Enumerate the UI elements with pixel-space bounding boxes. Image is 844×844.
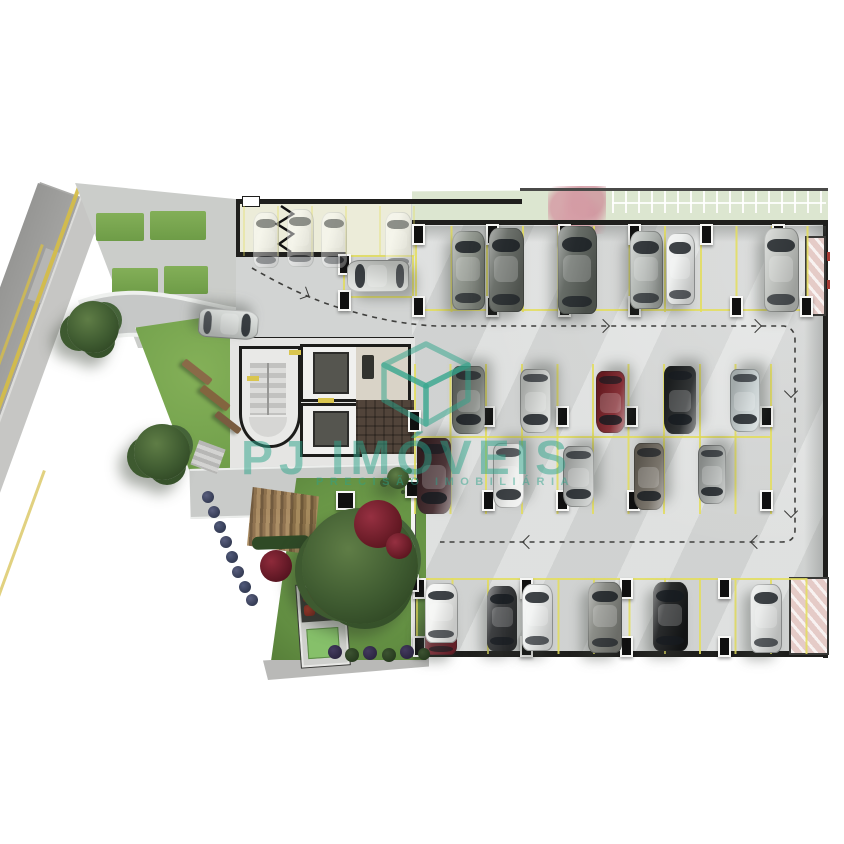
windshield — [656, 590, 683, 601]
red-shrub — [386, 533, 412, 559]
car-roof — [702, 466, 722, 484]
car-body — [417, 438, 451, 514]
car-body — [664, 366, 696, 434]
car-sedan-dark-maroon — [417, 438, 451, 514]
car-body — [558, 226, 597, 314]
car-roof — [219, 313, 239, 335]
windshield — [240, 314, 251, 337]
dimension-mark — [827, 252, 830, 261]
windshield — [633, 241, 659, 253]
sidewalk-tree — [134, 424, 190, 480]
car-sedan-dark-red — [596, 371, 625, 433]
rear-window — [324, 256, 344, 263]
grass-strip — [112, 268, 158, 295]
column-pillar — [800, 296, 813, 317]
car-roof — [494, 256, 519, 282]
car-roof — [524, 392, 546, 412]
car-suv-silver — [630, 231, 663, 309]
entrance-side-wall — [236, 199, 240, 257]
column-pillar — [718, 578, 731, 599]
windshield — [599, 415, 622, 425]
car-sedan-black-3 — [653, 582, 688, 651]
elevator-shaft-2 — [300, 403, 362, 457]
car-roof — [492, 607, 513, 627]
car-body — [253, 212, 279, 268]
red-shrub — [260, 550, 292, 582]
windshield — [669, 242, 692, 254]
hedge-shrub — [220, 536, 232, 548]
site-plan-rendering: PJ IMÓVEIS PRECISÃO IMOBILIÁRIA — [0, 0, 844, 844]
rear-window — [202, 311, 211, 334]
windshield — [592, 591, 619, 602]
car-sedan-white — [493, 443, 524, 508]
elevator-shaft-1 — [300, 344, 362, 402]
car-body — [563, 446, 594, 507]
windshield — [525, 592, 549, 603]
border-shrub — [418, 648, 430, 660]
rear-window — [566, 450, 590, 458]
car-body — [487, 586, 517, 651]
street-tree — [67, 301, 119, 353]
rear-window — [633, 293, 659, 303]
car-roof — [593, 605, 617, 627]
ghost-car — [253, 212, 279, 268]
car-roof — [367, 265, 386, 287]
rear-window — [637, 448, 660, 457]
windshield — [490, 594, 513, 604]
car-roof — [429, 603, 452, 622]
car-suv-gray-2 — [588, 582, 622, 653]
car-suv-light-gray — [764, 228, 799, 312]
car-roof — [526, 606, 548, 627]
car-body — [630, 231, 663, 309]
car-body — [750, 584, 782, 653]
car-body — [653, 582, 688, 651]
wood-deck-lounge — [356, 400, 414, 454]
car-roof — [670, 257, 690, 279]
parking-line — [414, 436, 770, 438]
column-pillar — [625, 406, 638, 427]
car-suv-silver-2 — [563, 446, 594, 507]
car-body — [520, 369, 551, 433]
stair-handrail — [267, 363, 269, 415]
red-bin — [304, 605, 316, 617]
car-roof — [769, 256, 794, 282]
windshield — [455, 241, 481, 254]
rear-window — [289, 255, 310, 263]
car-driveway-silver — [197, 307, 259, 340]
rear-window — [396, 264, 404, 289]
garden-bush — [387, 467, 409, 489]
rear-window — [490, 637, 513, 645]
rear-window — [656, 636, 683, 645]
car-roof — [257, 230, 275, 247]
grass-strip — [164, 266, 208, 294]
rear-window — [767, 294, 794, 305]
car-body — [197, 307, 259, 340]
car-body — [321, 212, 347, 268]
car-body — [588, 582, 622, 653]
windshield — [428, 591, 454, 601]
column-pillar — [408, 410, 421, 432]
border-shrub — [382, 648, 396, 662]
car-roof — [497, 466, 519, 486]
rear-window — [592, 638, 619, 647]
car-compact-white — [666, 233, 695, 305]
hedge-shrub — [239, 581, 251, 593]
car-roof — [600, 393, 620, 412]
door-opening — [243, 197, 259, 206]
column-pillar — [412, 296, 425, 317]
rear-window — [599, 376, 622, 384]
car-sedan-black — [664, 366, 696, 434]
car-roof — [755, 606, 777, 627]
column-pillar — [730, 296, 743, 317]
windshield — [733, 413, 756, 423]
column-pillar — [412, 224, 425, 245]
car-sedan-silver — [520, 369, 551, 433]
car-body — [764, 228, 799, 312]
hedge-shrub — [246, 594, 258, 606]
car-body — [452, 366, 485, 434]
hedge-shrub — [208, 506, 220, 518]
car-classic-light-blue — [730, 369, 760, 432]
hedge-shrub — [232, 566, 244, 578]
windshield — [754, 592, 779, 603]
rear-window — [428, 630, 454, 638]
car-roof — [422, 465, 446, 489]
parking-line — [412, 255, 414, 298]
car-body — [347, 260, 409, 292]
car-body — [666, 233, 695, 305]
windshield — [566, 489, 590, 499]
ghost-car — [321, 212, 347, 268]
car-body — [489, 228, 524, 312]
car-roof — [634, 257, 657, 281]
car-body — [287, 209, 314, 267]
hedge-row — [252, 535, 310, 550]
car-suv-brown-gray — [634, 443, 664, 510]
ghost-car — [287, 209, 314, 267]
rear-window — [701, 449, 723, 457]
car-body — [698, 445, 726, 504]
parking-line — [344, 296, 414, 298]
rear-window — [668, 371, 693, 380]
windshield — [289, 217, 310, 226]
car-sedan-white-2 — [522, 584, 553, 651]
windshield — [256, 219, 276, 228]
border-shrub — [400, 645, 414, 659]
column-pillar — [700, 224, 713, 245]
car-body — [634, 443, 664, 510]
strip-divider-line — [612, 202, 826, 204]
car-roof — [456, 257, 479, 281]
windshield — [668, 414, 693, 425]
rear-window — [669, 290, 692, 299]
room-fixture — [362, 355, 374, 379]
car-body — [596, 371, 625, 433]
windshield — [496, 489, 520, 499]
rear-window — [525, 636, 549, 645]
rear-window — [733, 374, 756, 382]
rear-window — [562, 296, 592, 307]
car-roof — [563, 255, 590, 282]
hedge-shrub — [202, 491, 214, 503]
car-suv-gray — [452, 366, 485, 434]
car-roof — [325, 230, 343, 247]
elevator-cab — [313, 352, 349, 394]
car-body — [452, 231, 485, 310]
hedge-shrub — [226, 551, 238, 563]
car-white-front — [425, 583, 458, 643]
street-yellow-line-left-2 — [0, 470, 46, 612]
car-sedan-black-2 — [487, 586, 517, 651]
stair-landing — [249, 417, 287, 437]
wall-top-left — [236, 199, 522, 204]
car-body — [730, 369, 760, 432]
car-roof — [291, 228, 310, 246]
car-body — [425, 583, 458, 643]
grass-strip — [96, 213, 144, 241]
car-sedan-silver-3 — [750, 584, 782, 653]
windshield — [324, 219, 344, 228]
car-suv-entrance — [347, 260, 409, 292]
car-roof — [639, 467, 660, 488]
car-roof — [735, 391, 756, 411]
car-suv-dark-large — [558, 226, 597, 314]
rear-window — [492, 294, 519, 305]
rear-window — [455, 371, 481, 380]
tactile-mat — [289, 350, 301, 355]
windshield — [701, 486, 723, 495]
windshield — [421, 492, 448, 504]
windshield — [637, 490, 660, 501]
column-pillar — [338, 290, 351, 311]
rear-window — [496, 448, 520, 456]
car-suv-gray-compact — [698, 445, 726, 504]
windshield — [455, 414, 481, 425]
rear-window — [523, 374, 547, 382]
rear-window — [429, 646, 454, 651]
column-pillar — [760, 406, 773, 427]
windshield — [767, 239, 794, 252]
car-sedan-gray-green — [452, 231, 485, 310]
windshield — [523, 414, 547, 424]
car-body — [522, 584, 553, 651]
rear-window — [754, 638, 779, 647]
garage-top-wall — [412, 220, 828, 225]
windshield — [355, 264, 365, 289]
tactile-mat — [247, 376, 259, 381]
car-roof — [567, 467, 589, 486]
utility-room — [356, 344, 411, 406]
rear-window — [455, 293, 481, 303]
hedge-shrub — [214, 521, 226, 533]
windshield — [387, 220, 408, 229]
rear-window — [256, 256, 276, 263]
border-shrub — [363, 646, 377, 660]
elevator-cab — [313, 411, 349, 447]
tactile-mat — [318, 398, 334, 403]
border-shrub — [328, 645, 342, 659]
car-roof — [389, 231, 408, 249]
windshield — [492, 239, 519, 252]
property-line — [520, 188, 828, 191]
parking-line — [416, 578, 806, 580]
dimension-mark — [827, 280, 830, 289]
car-roof — [669, 390, 691, 411]
column-pillar — [556, 406, 569, 427]
car-body — [493, 443, 524, 508]
column-pillar — [718, 636, 731, 657]
car-roof — [658, 604, 683, 625]
column-pillar — [336, 491, 355, 510]
car-suv-dark-gray — [489, 228, 524, 312]
windshield — [562, 237, 592, 251]
car-roof — [456, 390, 479, 411]
grass-strip — [150, 211, 206, 240]
border-shrub — [345, 648, 359, 662]
stair-tower — [239, 346, 301, 448]
rear-window — [421, 444, 448, 454]
column-pillar — [760, 490, 773, 511]
